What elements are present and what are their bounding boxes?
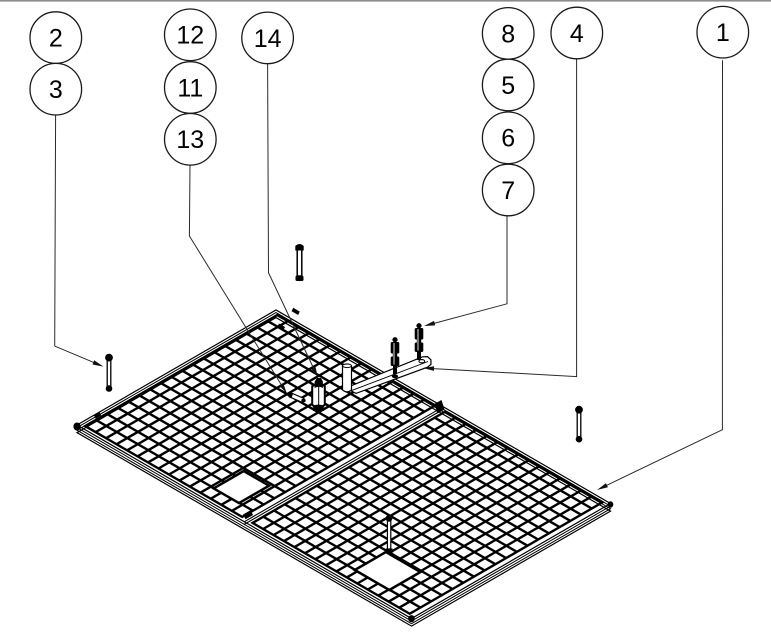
svg-text:2: 2 bbox=[49, 25, 63, 53]
svg-text:3: 3 bbox=[49, 76, 63, 104]
svg-text:7: 7 bbox=[501, 177, 515, 205]
svg-text:1: 1 bbox=[716, 19, 730, 47]
svg-text:13: 13 bbox=[176, 126, 204, 154]
svg-text:5: 5 bbox=[501, 72, 515, 100]
svg-text:8: 8 bbox=[501, 20, 515, 48]
svg-text:11: 11 bbox=[177, 74, 203, 102]
svg-text:14: 14 bbox=[254, 25, 282, 53]
svg-text:6: 6 bbox=[501, 125, 515, 153]
svg-text:4: 4 bbox=[570, 20, 584, 48]
svg-text:12: 12 bbox=[176, 22, 204, 50]
